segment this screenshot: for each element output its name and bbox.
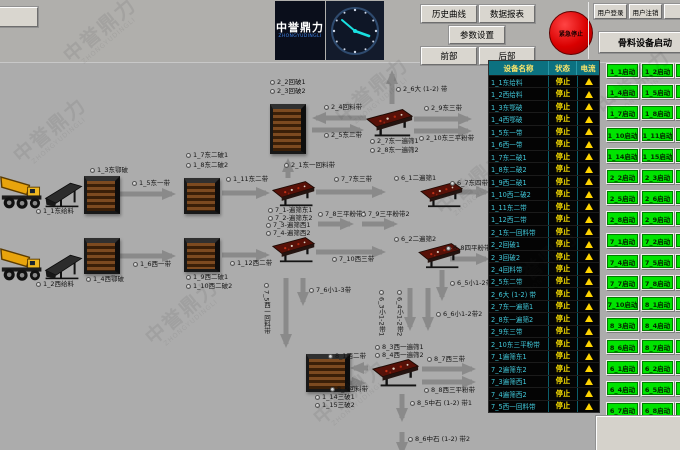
header-status: 状态: [548, 61, 576, 75]
current-alarm-icon: [585, 403, 593, 410]
flow-label: 7_3-遍筛西1: [266, 222, 311, 229]
flow-label: 7_10西三带: [332, 256, 374, 263]
start-button[interactable]: 1_15启动: [642, 149, 673, 162]
current-alarm-icon: [585, 191, 593, 198]
device-current-cell: [577, 238, 599, 249]
start-button[interactable]: 2_2启动: [607, 170, 638, 183]
current-alarm-icon: [585, 153, 593, 160]
start-button[interactable]: 1_10启动: [607, 128, 638, 141]
start-button[interactable]: 2_5启动: [607, 191, 638, 204]
start-button[interactable]: 7_7启动: [607, 276, 638, 289]
device-row[interactable]: 1_12西二带停止: [489, 212, 599, 224]
flow-label: 7_7东三带: [334, 176, 372, 183]
watermark-text: 中誉鼎力: [9, 93, 91, 166]
table-header: 设备名称 状态 电流: [489, 61, 599, 75]
current-alarm-icon: [585, 278, 593, 285]
device-name: 1_9西二破1: [489, 176, 548, 187]
device-row[interactable]: 2_8东一遍筛2停止: [489, 312, 599, 324]
device-name: 2_5东二带: [489, 276, 548, 287]
logo-title: 中誉鼎力: [276, 22, 324, 33]
current-alarm-icon: [585, 103, 593, 110]
device-current-cell: [577, 338, 599, 349]
start-button[interactable]: [676, 64, 680, 77]
device-current-cell: [577, 301, 599, 312]
start-button[interactable]: 1_7启动: [607, 106, 638, 119]
current-alarm-icon: [585, 290, 593, 297]
device-status: 停止: [548, 213, 577, 224]
current-alarm-icon: [585, 365, 593, 372]
device-name: 7_3遍筛西1: [489, 376, 548, 387]
start-button[interactable]: [676, 191, 680, 204]
start-button[interactable]: 2_8启动: [607, 212, 638, 225]
device-row[interactable]: 2_9东三带停止: [489, 325, 599, 337]
device-status: 停止: [548, 263, 577, 274]
device-status: 停止: [548, 126, 577, 137]
front-section-button[interactable]: 前部: [421, 47, 477, 65]
dump-truck-east-icon: [0, 166, 46, 212]
device-row[interactable]: 1_11东二带停止: [489, 200, 599, 212]
current-alarm-icon: [585, 303, 593, 310]
flow-label: 2_9东三带: [424, 105, 462, 112]
corner-button[interactable]: [0, 7, 38, 27]
current-alarm-icon: [585, 353, 593, 360]
flow-label: 2_3回破2: [270, 88, 306, 95]
flow-label: 1_10西二破2: [186, 283, 232, 290]
screen-east-1-icon[interactable]: [272, 178, 316, 208]
flow-label: 7_1-遍筛东1: [268, 207, 313, 214]
device-status: 停止: [548, 363, 577, 374]
start-button[interactable]: [676, 318, 680, 331]
device-status: 停止: [548, 163, 577, 174]
device-row[interactable]: 7_5西一回料带停止: [489, 400, 599, 412]
device-status: 停止: [548, 113, 577, 124]
device-current-cell: [577, 151, 599, 162]
flow-label: 6_1二遍筛1: [394, 175, 436, 182]
device-status: 停止: [548, 351, 577, 362]
start-button[interactable]: [676, 149, 680, 162]
start-button[interactable]: 1_5启动: [642, 85, 673, 98]
device-status: 停止: [548, 326, 577, 337]
current-alarm-icon: [585, 315, 593, 322]
device-name: 1_8东二破2: [489, 163, 548, 174]
start-button[interactable]: 1_1启动: [607, 64, 638, 77]
device-name: 2_10东三平粉带: [489, 338, 548, 349]
device-current-cell: [577, 251, 599, 262]
start-button[interactable]: [676, 255, 680, 268]
flow-label: 7_9三平粉带2: [361, 211, 410, 218]
device-row[interactable]: 1_4西鄂破停止: [489, 112, 599, 124]
start-button[interactable]: [676, 212, 680, 225]
device-row[interactable]: 2_2回破1停止: [489, 237, 599, 249]
start-button[interactable]: 1_14启动: [607, 149, 638, 162]
start-button[interactable]: [676, 128, 680, 141]
start-button[interactable]: [676, 106, 680, 119]
flow-label: 1_7东二破1: [186, 152, 228, 159]
device-name: 2_6大 (1-2) 带: [489, 288, 548, 299]
recirculation-crusher[interactable]: [270, 104, 306, 154]
current-alarm-icon: [585, 178, 593, 185]
start-button[interactable]: 2_3启动: [642, 170, 673, 183]
start-button[interactable]: 7_2启动: [642, 234, 673, 247]
start-button[interactable]: [676, 403, 680, 416]
device-current-cell: [577, 351, 599, 362]
current-alarm-icon: [585, 128, 593, 135]
watermark-subtext: ZHONGYUDINGLI: [23, 110, 95, 172]
toolbar-divider: [588, 2, 589, 59]
start-button[interactable]: 6_8启动: [642, 403, 673, 416]
current-alarm-icon: [585, 166, 593, 173]
current-alarm-icon: [585, 378, 593, 385]
history-curve-button[interactable]: 历史曲线: [421, 5, 477, 23]
start-button[interactable]: 1_8启动: [642, 106, 673, 119]
header-current: 电流: [576, 61, 599, 75]
device-name: 1_4西鄂破: [489, 113, 548, 124]
device-status: 停止: [548, 76, 577, 87]
start-button[interactable]: 8_3启动: [607, 318, 638, 331]
start-button[interactable]: 6_4启动: [607, 382, 638, 395]
start-button[interactable]: 6_7启动: [607, 403, 638, 416]
device-status-table: 设备名称 状态 电流 1_1东给料停止1_2西给料停止1_3东鄂破停止1_4西鄂…: [488, 60, 600, 413]
device-status: 停止: [548, 288, 577, 299]
flow-label: 1_2西给料: [36, 281, 74, 288]
device-current-cell: [577, 176, 599, 187]
watermark: 中誉鼎力ZHONGYUDINGLI: [9, 93, 95, 172]
device-current-cell: [577, 363, 599, 374]
flow-label: 7_8三平粉带1: [318, 211, 367, 218]
device-name: 2_2回破1: [489, 238, 548, 249]
device-current-cell: [577, 326, 599, 337]
start-button[interactable]: [676, 297, 680, 310]
device-status: 停止: [548, 226, 577, 237]
screen-east-top-icon[interactable]: [366, 106, 414, 138]
flow-label: 1_4西鄂破: [86, 276, 124, 283]
device-row[interactable]: 2_3回破2停止: [489, 250, 599, 262]
device-status: 停止: [548, 201, 577, 212]
device-row[interactable]: 1_3东鄂破停止: [489, 100, 599, 112]
start-button[interactable]: [676, 361, 680, 374]
device-name: 1_7东二破1: [489, 151, 548, 162]
flow-label: 7_4-遍筛西2: [266, 230, 311, 237]
device-status: 停止: [548, 401, 577, 412]
flow-label: 1_1东给料: [36, 208, 74, 215]
extra-user-button[interactable]: [664, 4, 680, 19]
device-status: 停止: [548, 338, 577, 349]
device-status: 停止: [548, 313, 577, 324]
start-button[interactable]: [676, 85, 680, 98]
device-current-cell: [577, 76, 599, 87]
device-row[interactable]: 1_1东给料停止: [489, 75, 599, 87]
device-name: 1_3东鄂破: [489, 101, 548, 112]
flow-label: 7_6小1-3带: [309, 287, 351, 294]
start-button[interactable]: [676, 234, 680, 247]
start-button[interactable]: 6_5启动: [642, 382, 673, 395]
current-alarm-icon: [585, 91, 593, 98]
start-button[interactable]: 7_1启动: [607, 234, 638, 247]
device-current-cell: [577, 113, 599, 124]
device-row[interactable]: 1_10西二破2停止: [489, 187, 599, 199]
flow-label: 1_12西二带: [230, 260, 272, 267]
device-name: 1_12西二带: [489, 213, 548, 224]
device-status: 停止: [548, 188, 577, 199]
device-current-cell: [577, 213, 599, 224]
device-status: 停止: [548, 388, 577, 399]
current-alarm-icon: [585, 328, 593, 335]
device-current-cell: [577, 263, 599, 274]
current-alarm-icon: [585, 203, 593, 210]
flow-label: 8_3西一遍筛1: [375, 344, 424, 351]
secondary-crusher-west[interactable]: [184, 238, 220, 272]
screen-west-bottom-icon[interactable]: [372, 356, 420, 388]
current-alarm-icon: [585, 141, 593, 148]
top-toolbar: 中誉鼎力 ZHONGYUDINGLI 历史曲线 数据报表 参数设置 前部 后部: [0, 0, 680, 63]
start-button[interactable]: 8_6启动: [607, 340, 638, 353]
flow-label: 1_6西一带: [133, 261, 171, 268]
device-status: 停止: [548, 376, 577, 387]
logo-subtitle: ZHONGYUDINGLI: [278, 35, 321, 40]
start-button[interactable]: [676, 340, 680, 353]
flow-label: 6_8四平粉带: [446, 245, 491, 252]
flow-label: 1_15三破2: [315, 402, 355, 409]
current-alarm-icon: [585, 116, 593, 123]
device-name: 7_2遍筛东2: [489, 363, 548, 374]
flow-label: 2_2回破1: [270, 79, 306, 86]
device-current-cell: [577, 388, 599, 399]
flow-label: 2_10东三平粉带: [419, 135, 474, 142]
start-button[interactable]: [676, 170, 680, 183]
device-name: 2_4回料带: [489, 263, 548, 274]
device-current-cell: [577, 288, 599, 299]
parameter-settings-button[interactable]: 参数设置: [449, 26, 505, 44]
device-row[interactable]: 7_3遍筛西1停止: [489, 375, 599, 387]
device-current-cell: [577, 401, 599, 412]
start-button[interactable]: 6_1启动: [607, 361, 638, 374]
bottom-right-panel: [596, 416, 680, 450]
flow-label: 8_2回料带: [330, 386, 368, 393]
start-button[interactable]: 7_8启动: [642, 276, 673, 289]
device-current-cell: [577, 201, 599, 212]
screen-west-1-icon[interactable]: [272, 234, 316, 264]
user-login-button[interactable]: 用户登录: [594, 4, 627, 19]
feeder-west-icon: [44, 252, 84, 280]
hmi-screen: 中誉鼎力 ZHONGYUDINGLI 历史曲线 数据报表 参数设置 前部 后部: [0, 0, 680, 450]
flow-label: 8_8西三平粉带: [424, 387, 475, 394]
start-button[interactable]: 1_11启动: [642, 128, 673, 141]
flow-label: 8_1西二带: [328, 353, 366, 360]
start-button[interactable]: [676, 276, 680, 289]
flow-label: 1_14三破1: [315, 394, 355, 401]
current-alarm-icon: [585, 228, 593, 235]
aggregate-equipment-start-button[interactable]: 骨料设备启动: [599, 32, 680, 53]
flow-label: 6_4小1-2带2: [396, 290, 403, 336]
device-row[interactable]: 7_4遍筛西2停止: [489, 387, 599, 399]
device-row[interactable]: 1_8东二破2停止: [489, 162, 599, 174]
flow-label: 8_6中石 (1-2) 带2: [408, 436, 470, 443]
flow-label: 6_6小1-2带2: [436, 311, 482, 318]
start-button[interactable]: 8_7启动: [642, 340, 673, 353]
device-current-cell: [577, 376, 599, 387]
device-status: 停止: [548, 176, 577, 187]
flow-label: 2_4回料带: [324, 104, 362, 111]
device-name: 7_1遍筛东1: [489, 351, 548, 362]
start-button[interactable]: 7_5启动: [642, 255, 673, 268]
device-row[interactable]: 7_1遍筛东1停止: [489, 350, 599, 362]
jaw-crusher-west[interactable]: [84, 238, 120, 274]
start-button[interactable]: 6_2启动: [642, 361, 673, 374]
device-status: 停止: [548, 276, 577, 287]
device-row[interactable]: 1_6西一带停止: [489, 137, 599, 149]
device-name: 1_11东二带: [489, 201, 548, 212]
flow-label: 2_8东一遍筛2: [370, 147, 419, 154]
device-name: 7_4遍筛西2: [489, 388, 548, 399]
start-button[interactable]: 1_2启动: [642, 64, 673, 77]
device-row[interactable]: 2_7东一遍筛1停止: [489, 300, 599, 312]
header-device-name: 设备名称: [489, 61, 548, 75]
flow-label: 7_5西一回料带: [263, 283, 270, 334]
device-current-cell: [577, 313, 599, 324]
flow-label: 6_7东四带: [450, 180, 488, 187]
device-current-cell: [577, 276, 599, 287]
device-current-cell: [577, 88, 599, 99]
device-name: 2_9东三带: [489, 326, 548, 337]
device-name: 2_8东一遍筛2: [489, 313, 548, 324]
device-row[interactable]: 1_9西二破1停止: [489, 175, 599, 187]
current-alarm-icon: [585, 78, 593, 85]
current-alarm-icon: [585, 241, 593, 248]
analog-clock: [326, 1, 384, 60]
device-status: 停止: [548, 301, 577, 312]
current-alarm-icon: [585, 266, 593, 273]
flow-label: 1_8东二破2: [186, 162, 228, 169]
device-row[interactable]: 2_1东一回料带停止: [489, 225, 599, 237]
device-name: 1_6西一带: [489, 138, 548, 149]
flow-label: 8_7西三带: [427, 356, 465, 363]
secondary-crusher-east[interactable]: [184, 178, 220, 214]
current-alarm-icon: [585, 216, 593, 223]
flow-label: 2_6大 (1-2) 带: [396, 86, 447, 93]
start-button[interactable]: 7_10启动: [607, 297, 638, 310]
flow-label: 8_4西一遍筛2: [375, 352, 424, 359]
start-button[interactable]: 1_4启动: [607, 85, 638, 98]
emergency-stop-button[interactable]: 紧急停止: [549, 11, 593, 55]
start-button[interactable]: [676, 382, 680, 395]
start-button[interactable]: 2_6启动: [642, 191, 673, 204]
device-current-cell: [577, 163, 599, 174]
device-current-cell: [577, 101, 599, 112]
device-name: 1_5东一带: [489, 126, 548, 137]
device-name: 7_5西一回料带: [489, 401, 548, 412]
device-name: 1_1东给料: [489, 76, 548, 87]
data-report-button[interactable]: 数据报表: [479, 5, 535, 23]
device-name: 2_1东一回料带: [489, 226, 548, 237]
device-name: 1_2西给料: [489, 88, 548, 99]
company-logo: 中誉鼎力 ZHONGYUDINGLI: [275, 1, 325, 60]
device-row[interactable]: 2_6大 (1-2) 带停止: [489, 287, 599, 299]
start-button[interactable]: 8_4启动: [642, 318, 673, 331]
device-status: 停止: [548, 101, 577, 112]
device-row[interactable]: 1_2西给料停止: [489, 87, 599, 99]
device-status: 停止: [548, 88, 577, 99]
device-current-cell: [577, 226, 599, 237]
table-body: 1_1东给料停止1_2西给料停止1_3东鄂破停止1_4西鄂破停止1_5东一带停止…: [489, 75, 599, 412]
device-status: 停止: [548, 138, 577, 149]
device-row[interactable]: 2_5东二带停止: [489, 275, 599, 287]
device-status: 停止: [548, 151, 577, 162]
flow-label: 2_7东一遍筛1: [370, 138, 419, 145]
flow-label: 6_2二遍筛2: [394, 236, 436, 243]
flow-label: 1_5东一带: [132, 180, 170, 187]
device-row[interactable]: 1_7东二破1停止: [489, 150, 599, 162]
feeder-east-icon: [44, 180, 84, 208]
device-current-cell: [577, 188, 599, 199]
device-status: 停止: [548, 251, 577, 262]
dump-truck-west-icon: [0, 238, 46, 284]
flow-label: 1_9西二破1: [186, 274, 228, 281]
device-name: 2_7东一遍筛1: [489, 301, 548, 312]
current-alarm-icon: [585, 253, 593, 260]
flow-label: 8_5中石 (1-2) 带1: [410, 400, 472, 407]
device-status: 停止: [548, 238, 577, 249]
flow-label: 2_1东一回料带: [284, 162, 335, 169]
start-button[interactable]: 2_9启动: [642, 212, 673, 225]
device-current-cell: [577, 138, 599, 149]
watermark-subtext: ZHONGYUDINGLI: [155, 292, 227, 354]
device-name: 1_10西二破2: [489, 188, 548, 199]
flow-label: 1_3东鄂破: [90, 167, 128, 174]
device-current-cell: [577, 126, 599, 137]
flow-label: 1_11东二带: [226, 176, 268, 183]
user-logout-button[interactable]: 用户注销: [629, 4, 662, 19]
device-row[interactable]: 7_2遍筛东2停止: [489, 362, 599, 374]
start-button[interactable]: 8_1启动: [642, 297, 673, 310]
flow-label: 6_3小1-2带1: [378, 290, 385, 336]
device-row[interactable]: 1_5东一带停止: [489, 125, 599, 137]
device-row[interactable]: 2_10东三平粉带停止: [489, 337, 599, 349]
device-name: 2_3回破2: [489, 251, 548, 262]
clock-icon: [327, 3, 383, 59]
current-alarm-icon: [585, 390, 593, 397]
current-alarm-icon: [585, 340, 593, 347]
jaw-crusher-east[interactable]: [84, 176, 120, 214]
flow-label: 2_5东二带: [324, 132, 362, 139]
device-row[interactable]: 2_4回料带停止: [489, 262, 599, 274]
start-button[interactable]: 7_4启动: [607, 255, 638, 268]
